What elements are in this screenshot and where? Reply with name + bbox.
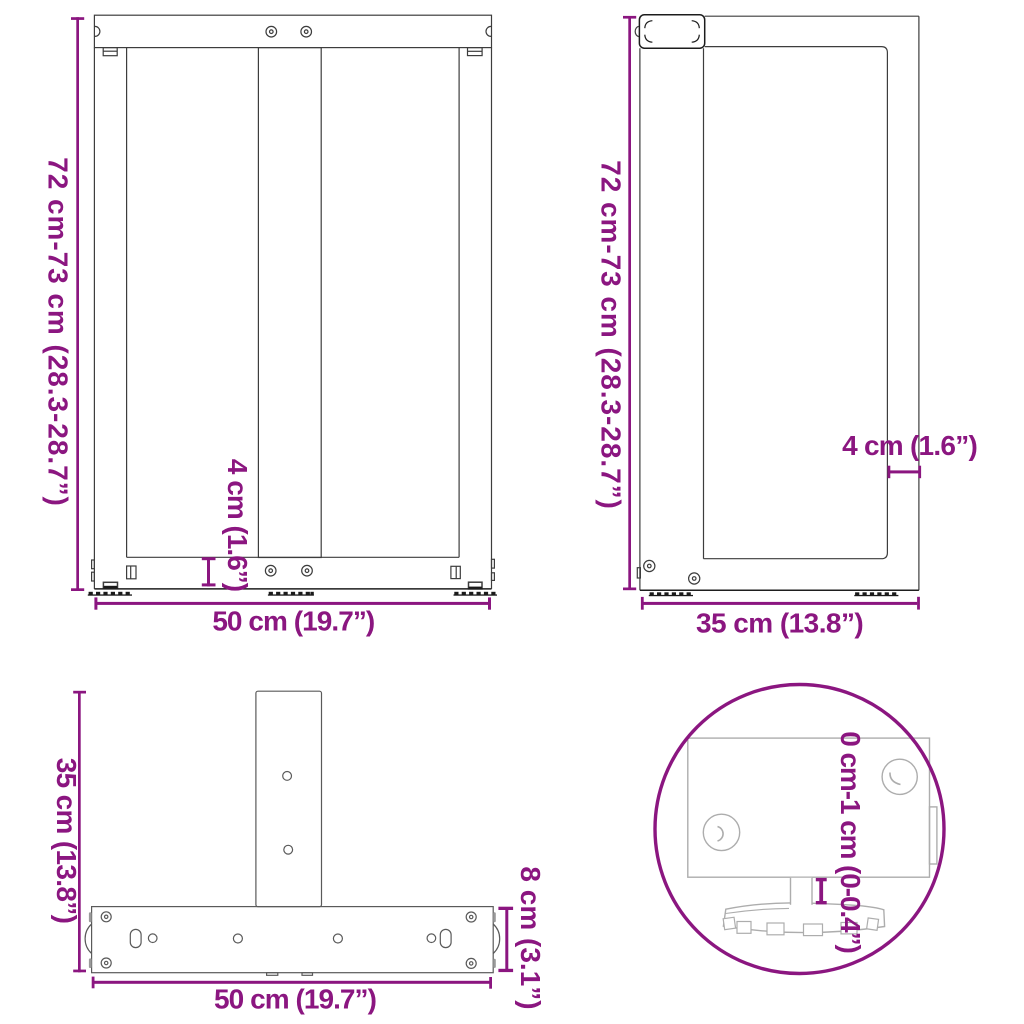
svg-text:72 cm-73 cm (28.3-28.7”): 72 cm-73 cm (28.3-28.7”) — [43, 157, 74, 507]
svg-text:0 cm-1 cm (0-0.4”): 0 cm-1 cm (0-0.4”) — [835, 731, 866, 952]
svg-text:50 cm (19.7”): 50 cm (19.7”) — [212, 605, 374, 636]
svg-text:72 cm-73 cm (28.3-28.7”): 72 cm-73 cm (28.3-28.7”) — [596, 160, 627, 510]
svg-text:4 cm (1.6”): 4 cm (1.6”) — [842, 430, 977, 461]
svg-text:35 cm (13.8”): 35 cm (13.8”) — [51, 758, 82, 923]
svg-text:4 cm (1.6”): 4 cm (1.6”) — [222, 459, 253, 591]
svg-text:35 cm (13.8”): 35 cm (13.8”) — [696, 607, 863, 638]
svg-text:50 cm (19.7”): 50 cm (19.7”) — [214, 984, 376, 1015]
svg-text:8 cm (3.1”): 8 cm (3.1”) — [515, 866, 546, 1009]
